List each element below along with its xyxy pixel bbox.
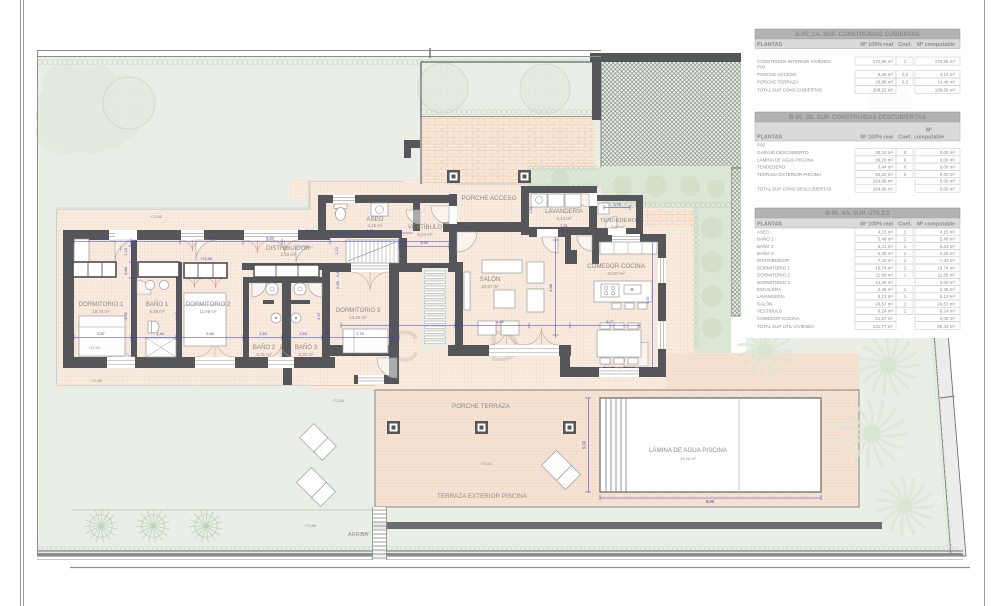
svg-text:4,15 m²: 4,15 m² [940,229,956,234]
svg-text:0,5: 0,5 [902,80,909,85]
svg-text:M²: M² [926,128,932,134]
svg-text:TOTAL SUP CONS CUBIERTAS: TOTAL SUP CONS CUBIERTAS [757,88,822,93]
svg-text:2,87: 2,87 [97,332,104,336]
svg-text:4,84: 4,84 [325,326,329,333]
svg-text:BAÑO 2: BAÑO 2 [253,344,276,351]
svg-text:+72,98: +72,98 [200,257,212,261]
svg-text:ASEO: ASEO [367,216,384,223]
svg-text:131,77 m²: 131,77 m² [873,324,894,329]
svg-text:5,00: 5,00 [582,440,587,449]
svg-text:30,16 m²: 30,16 m² [875,150,893,155]
svg-text:computable: computable [914,135,944,141]
svg-text:PORCHE TERRAZA: PORCHE TERRAZA [757,80,798,85]
svg-text:M² 100% real: M² 100% real [860,135,893,141]
svg-text:ASEO: ASEO [757,229,770,234]
svg-text:82,20 m²: 82,20 m² [875,172,893,177]
svg-text:2,13: 2,13 [637,214,641,221]
svg-text:13,26 m²: 13,26 m² [875,280,893,285]
svg-text:BAÑO 2: BAÑO 2 [757,243,774,249]
svg-text:BAÑO 3: BAÑO 3 [295,344,318,351]
svg-text:5,48 m²: 5,48 m² [940,237,956,242]
svg-text:COMEDOR-COCINA: COMEDOR-COCINA [587,263,645,270]
svg-text:1,63: 1,63 [299,332,306,336]
svg-text:5,31 m²: 5,31 m² [257,352,272,357]
svg-text:B-05_2B. SUP. CONSTRUIDAS DESC: B-05_2B. SUP. CONSTRUIDAS DESCUBIERTAS [789,114,926,121]
svg-text:4,80: 4,80 [496,320,503,324]
svg-text:14,48 m²: 14,48 m² [937,80,955,85]
svg-text:2,47: 2,47 [317,312,321,319]
svg-text:P00: P00 [757,65,766,70]
svg-text:0,90: 0,90 [336,281,340,288]
svg-text:0,00 m²: 0,00 m² [940,172,956,177]
svg-text:1,52: 1,52 [529,206,533,213]
svg-text:DORMITORIO 3: DORMITORIO 3 [336,307,381,314]
svg-text:SALÓN: SALÓN [480,276,501,283]
svg-text:39,20 m²: 39,20 m² [875,157,893,162]
svg-text:0,00 m²: 0,00 m² [940,165,956,170]
svg-text:VESTIBULO: VESTIBULO [757,309,783,314]
svg-text:6,24 m²: 6,24 m² [940,309,956,314]
svg-text:LÁMINA DE AGUA PISCINA: LÁMINA DE AGUA PISCINA [649,447,728,454]
svg-text:PORCHE TERRAZA: PORCHE TERRAZA [452,403,511,410]
svg-text:208,22 m²: 208,22 m² [873,88,894,93]
svg-text:BAÑO 3: BAÑO 3 [757,250,774,256]
svg-text:0,00 m²: 0,00 m² [940,280,956,285]
svg-text:GARAJE DESCUBIERTO: GARAJE DESCUBIERTO [757,150,809,155]
svg-text:0,68: 0,68 [124,267,128,274]
svg-text:2,90: 2,90 [208,237,215,241]
svg-text:7,40: 7,40 [98,237,105,241]
svg-text:LAVANDERÍA: LAVANDERÍA [545,208,584,215]
svg-text:PLANTAS: PLANTAS [757,42,782,48]
svg-text:0,5: 0,5 [902,72,909,77]
svg-text:170,96 m²: 170,96 m² [935,59,956,64]
svg-text:DORMITORIO 3: DORMITORIO 3 [757,280,790,285]
svg-text:5,13 m²: 5,13 m² [557,216,572,221]
svg-text:ESCALERA: ESCALERA [757,287,781,292]
svg-text:Coef.: Coef. [898,222,912,228]
svg-text:M² 100% real: M² 100% real [860,42,893,48]
svg-text:0,00 m²: 0,00 m² [940,186,956,191]
svg-text:98,44 m²: 98,44 m² [937,324,955,329]
svg-text:5,31 m²: 5,31 m² [878,244,894,249]
svg-text:39,20 m²: 39,20 m² [680,456,696,461]
svg-text:7,43 m²: 7,43 m² [940,258,956,263]
svg-text:0,95: 0,95 [309,357,316,361]
svg-text:5,13 m²: 5,13 m² [940,294,956,299]
svg-text:+74,50: +74,50 [480,462,492,466]
svg-text:28,96 m²: 28,96 m² [875,80,893,85]
svg-text:8,69: 8,69 [266,237,273,241]
svg-text:PORCHE ACCESO: PORCHE ACCESO [757,72,797,77]
svg-text:3,44 m²: 3,44 m² [878,165,894,170]
svg-text:0,00 m²: 0,00 m² [940,150,956,155]
svg-text:154,98 m²: 154,98 m² [873,178,894,183]
svg-text:1,40: 1,40 [156,332,163,336]
svg-text:11,68 m²: 11,68 m² [938,273,956,278]
svg-text:5,48 m²: 5,48 m² [878,237,894,242]
svg-text:DISTRIBUIDOR: DISTRIBUIDOR [757,258,790,263]
svg-text:170,96 m²: 170,96 m² [873,59,894,64]
svg-text:M² computable: M² computable [917,42,955,48]
svg-text:P00: P00 [757,143,766,148]
svg-text:21,57 m²: 21,57 m² [607,271,625,276]
svg-text:LÁMINA DE AGUA PISCINA: LÁMINA DE AGUA PISCINA [757,156,814,162]
svg-text:2,46 m²: 2,46 m² [940,287,956,292]
svg-text:5,13 m²: 5,13 m² [878,294,894,299]
svg-text:13,26 m²: 13,26 m² [349,315,367,320]
svg-text:DORMITORIO 1: DORMITORIO 1 [757,265,790,270]
svg-text:24,57 m²: 24,57 m² [481,284,499,289]
svg-text:4,15 m²: 4,15 m² [878,229,894,234]
svg-text:3,99: 3,99 [420,241,427,245]
svg-text:11,68 m²: 11,68 m² [876,273,894,278]
svg-text:2,76: 2,76 [356,332,363,336]
svg-text:8,29 m²: 8,29 m² [878,72,894,77]
svg-text:SALÓN: SALÓN [757,300,772,306]
svg-text:3,50: 3,50 [124,312,128,319]
svg-text:9,80: 9,80 [706,499,715,504]
svg-text:+72,88: +72,88 [150,215,162,219]
svg-text:0,30: 0,30 [336,269,340,276]
svg-text:PLANTAS: PLANTAS [757,222,782,228]
svg-text:1,10: 1,10 [124,248,128,255]
svg-text:189,58 m²: 189,58 m² [935,88,956,93]
svg-text:CONSTRUIDA INTERIOR VIVIENDA: CONSTRUIDA INTERIOR VIVIENDA [757,59,832,64]
svg-text:Coef.: Coef. [898,135,912,141]
svg-text:4,97: 4,97 [646,296,650,303]
svg-text:5,48 m²: 5,48 m² [150,309,165,314]
svg-text:24,57 m²: 24,57 m² [937,301,955,306]
svg-text:3,44 m²: 3,44 m² [611,224,625,229]
svg-text:VESTÍBULO: VESTÍBULO [408,224,442,231]
svg-text:6,24 m²: 6,24 m² [418,232,433,237]
svg-text:1,76: 1,76 [613,203,620,207]
svg-text:DISTRIBUIDOR: DISTRIBUIDOR [266,245,310,252]
svg-text:24,57 m²: 24,57 m² [875,301,893,306]
svg-text:5,26 m²: 5,26 m² [940,251,956,256]
svg-text:18,74 m²: 18,74 m² [937,265,955,270]
svg-text:5,26 m²: 5,26 m² [878,251,894,256]
svg-text:2,46 m²: 2,46 m² [878,287,894,292]
svg-text:0,00 m²: 0,00 m² [940,316,956,321]
svg-text:TOTAL SUP CONS DESCUBIERTAS: TOTAL SUP CONS DESCUBIERTAS [757,186,831,191]
svg-text:TERRAZA EXTERIOR PISCINA: TERRAZA EXTERIOR PISCINA [757,172,821,177]
svg-text:PORCHE ACCESO: PORCHE ACCESO [462,195,517,202]
svg-text:4,15 m²: 4,15 m² [940,72,956,77]
svg-text:6,24 m²: 6,24 m² [878,309,894,314]
svg-text:0,00 m²: 0,00 m² [940,178,956,183]
svg-text:7,91: 7,91 [560,224,567,228]
svg-text:3,47: 3,47 [243,312,247,319]
svg-text:21,57 m²: 21,57 m² [875,316,893,321]
svg-text:4,07: 4,07 [606,320,613,324]
svg-text:5,04: 5,04 [306,229,313,233]
svg-text:B-05_4A. SUP. ÚTILES: B-05_4A. SUP. ÚTILES [825,210,890,217]
svg-text:154,98 m²: 154,98 m² [873,186,894,191]
svg-text:7,43 m²: 7,43 m² [878,258,894,263]
svg-text:TERRAZA EXTERIOR PISCINA: TERRAZA EXTERIOR PISCINA [437,493,528,500]
svg-text:2,43 m²: 2,43 m² [281,252,296,257]
svg-text:DORMITORIO 2: DORMITORIO 2 [757,273,790,278]
svg-text:3,47: 3,47 [175,312,179,319]
svg-text:+72,88: +72,88 [90,379,102,383]
svg-text:18,74 m²: 18,74 m² [875,265,893,270]
svg-text:M² computable: M² computable [917,222,955,228]
svg-text:+72,88: +72,88 [332,399,344,403]
svg-text:18,74 m²: 18,74 m² [92,309,110,314]
svg-text:1,62: 1,62 [259,332,266,336]
svg-text:M² 100% real: M² 100% real [860,222,893,228]
svg-text:BAÑO 1: BAÑO 1 [146,301,169,308]
svg-text:+72,90: +72,90 [88,346,100,350]
svg-text:3,01: 3,01 [366,229,373,233]
svg-text:Coef.: Coef. [898,42,912,48]
svg-text:COMEDOR-COCINA: COMEDOR-COCINA [757,316,800,321]
svg-text:B-05_1A. SUP. CONSTRUIDAS CUBI: B-05_1A. SUP. CONSTRUIDAS CUBIERTAS [795,31,919,38]
svg-text:4,15 m²: 4,15 m² [368,223,383,228]
svg-text:+72,88: +72,88 [304,524,316,528]
svg-text:TENDEDERO: TENDEDERO [757,165,786,170]
svg-text:11,68 m²: 11,68 m² [199,309,217,314]
svg-text:4,58: 4,58 [549,284,553,291]
svg-text:PLANTAS: PLANTAS [757,135,782,141]
svg-text:DORMITORIO 2: DORMITORIO 2 [186,301,231,308]
svg-text:0,00 m²: 0,00 m² [940,157,956,162]
svg-text:BAÑO 1: BAÑO 1 [757,236,774,242]
svg-text:TOTAL SUP ÚTIL VIVIENDA: TOTAL SUP ÚTIL VIVIENDA [757,323,814,329]
svg-text:DORMITORIO 1: DORMITORIO 1 [79,301,124,308]
svg-text:LAVANDERÍA: LAVANDERÍA [757,293,785,299]
svg-text:2,86: 2,86 [206,332,213,336]
svg-text:5,31 m²: 5,31 m² [940,244,956,249]
svg-text:1,10: 1,10 [335,247,339,254]
